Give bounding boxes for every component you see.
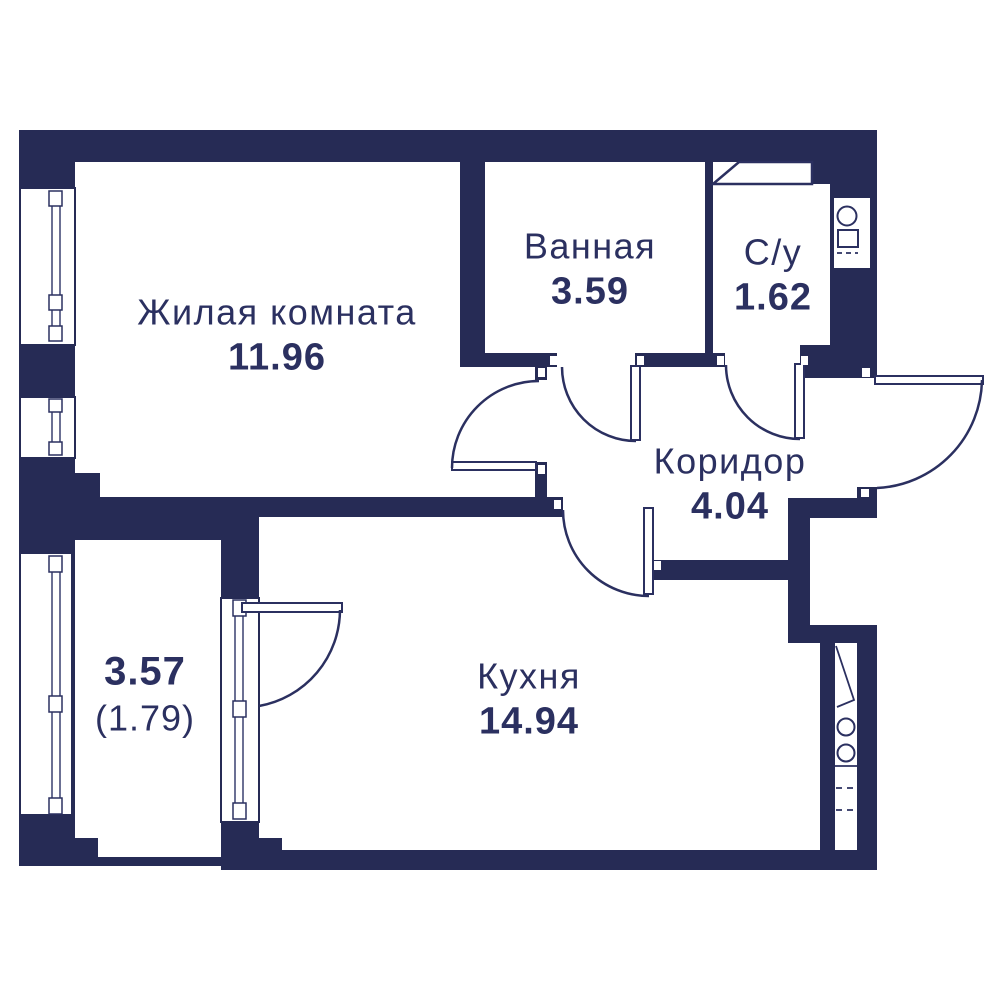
door-swing-arc — [563, 510, 649, 596]
room-label-living: Жилая комната 11.96 — [137, 294, 417, 379]
room-name: С/у — [734, 234, 812, 272]
room-name: Кухня — [477, 658, 581, 696]
room-label-kitchen: Кухня 14.94 — [477, 658, 581, 743]
window-mullion — [49, 399, 62, 412]
door-leaf — [242, 603, 342, 612]
wall-balcony-bottom — [19, 857, 221, 866]
window-mullion — [49, 326, 62, 341]
jamb-mark — [717, 356, 724, 365]
room-label-wc: С/у 1.62 — [734, 234, 812, 319]
room-label-balcony: 3.57 (1.79) — [95, 651, 195, 738]
wall-balcony-column-upper — [221, 540, 259, 598]
window-frame — [20, 553, 72, 815]
window-mullion — [49, 442, 62, 455]
wall-kitchen-right-inner — [820, 643, 835, 850]
jamb-mark — [538, 368, 545, 377]
door-swing-arc — [726, 365, 800, 439]
window-glass — [52, 194, 60, 333]
floor-plan-page: Жилая комната 11.96 Ванная 3.59 С/у 1.62… — [0, 0, 1000, 1000]
door-leaf — [644, 508, 653, 594]
wall-balcony-step — [72, 838, 98, 857]
jamb-mark — [861, 489, 869, 497]
wc-door — [726, 364, 804, 439]
living-window-large — [20, 188, 75, 345]
wall-balcony-column-lower — [221, 822, 259, 857]
window-mullion — [49, 556, 62, 572]
wall-right-lower — [857, 625, 877, 870]
wall-top — [19, 130, 877, 162]
wall-bath-bottom-left — [460, 353, 557, 367]
wall-balcony-top — [19, 497, 259, 540]
wall-bottom — [221, 850, 877, 870]
window-frame — [20, 188, 75, 345]
room-area: 14.94 — [477, 702, 581, 742]
room-area: 3.57 — [95, 651, 195, 693]
door-leaf — [452, 462, 536, 470]
window-mullion — [233, 803, 246, 819]
door-leaf — [631, 366, 640, 440]
window-glass — [52, 560, 60, 808]
jamb-mark — [654, 561, 661, 570]
window-mullion — [49, 798, 62, 814]
kitchen-door — [563, 508, 653, 596]
wall-living-bath-partition — [460, 162, 485, 365]
window-frame — [20, 397, 75, 458]
window-mullion — [49, 295, 62, 310]
window-mullion — [233, 701, 246, 717]
room-area: 3.59 — [524, 272, 656, 312]
wall-bath-wc-partition — [705, 162, 713, 353]
room-area: 1.62 — [734, 278, 812, 318]
room-area-secondary: (1.79) — [95, 700, 195, 738]
wall-bath-bottom-right — [635, 353, 725, 367]
bathroom-door — [562, 366, 640, 441]
living-window-small — [20, 397, 75, 458]
wall-corridor-bottom — [653, 560, 790, 580]
door-leaf — [795, 364, 804, 438]
wall-kitchen-glazing-step — [259, 838, 282, 857]
jamb-mark — [554, 500, 561, 509]
jamb-mark — [801, 356, 808, 365]
room-name: Ванная — [524, 228, 656, 266]
balcony-glazing — [20, 553, 72, 815]
kitchen-riser-shaft — [835, 643, 857, 850]
jamb-mark — [538, 465, 545, 474]
jamb-mark — [550, 356, 557, 365]
door-swing-arc — [259, 610, 340, 706]
door-swing-arc — [562, 367, 636, 441]
door-swing-arc — [452, 381, 539, 468]
door-swing-arc — [877, 380, 982, 488]
jamb-mark — [862, 368, 870, 377]
room-name: Жилая комната — [137, 294, 417, 332]
wall-living-pilaster — [75, 473, 100, 497]
room-label-bathroom: Ванная 3.59 — [524, 228, 656, 313]
room-name: Коридор — [654, 443, 807, 481]
window-mullion — [49, 696, 62, 712]
balcony-kitchen-glazing — [221, 598, 259, 822]
wc-riser-shaft — [834, 198, 870, 268]
ventilation-duct — [713, 162, 812, 184]
room-area: 4.04 — [654, 487, 807, 527]
living-room-door — [452, 381, 539, 470]
wall-kitchen-top — [259, 497, 563, 517]
entrance-door — [875, 376, 983, 488]
door-leaf — [875, 376, 983, 384]
jamb-mark — [637, 356, 644, 365]
room-label-corridor: Коридор 4.04 — [654, 443, 807, 528]
floor-plan-drawing — [0, 0, 1000, 1000]
room-area: 11.96 — [137, 338, 417, 378]
window-mullion — [49, 191, 62, 206]
